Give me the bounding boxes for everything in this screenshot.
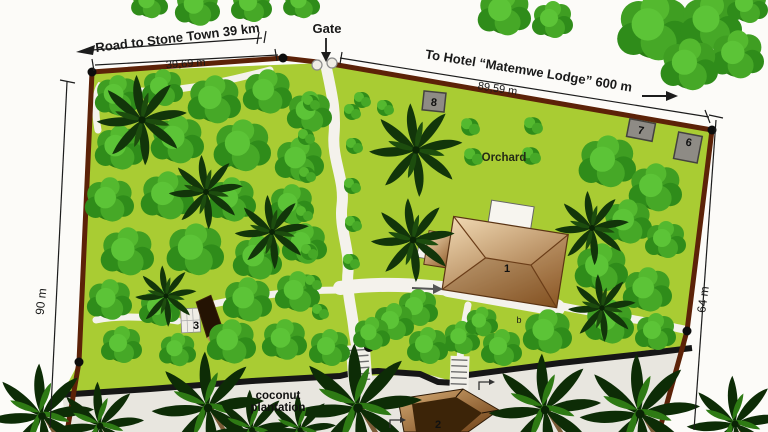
house-1-label: 1 — [504, 263, 510, 275]
coconut-label-line2: plantation — [251, 402, 306, 414]
building-3-label: 3 — [193, 320, 199, 332]
marker-8-label: 8 — [430, 97, 437, 110]
gate-post-icon — [312, 60, 322, 70]
dim-west-boundary: 90 m — [33, 288, 50, 316]
building-2-label: 2 — [435, 419, 441, 431]
entrance-arrow-icon — [412, 288, 434, 289]
orchard-label: Orchard — [482, 152, 527, 164]
site-plan-canvas: 8 7 6 1 2 3 b Road to Stone Town 39 km 3… — [0, 0, 768, 432]
marker-8: 8 — [422, 91, 446, 112]
site-plan: 8 7 6 1 2 3 b Road to Stone Town 39 km 3… — [0, 0, 768, 432]
marker-6: 6 — [674, 132, 703, 163]
steps-house-path — [449, 356, 469, 393]
gate-label: Gate — [313, 21, 342, 36]
coconut-label-line1: coconut — [256, 390, 301, 402]
marker-7: 7 — [627, 119, 656, 142]
point-b-label: b — [516, 315, 521, 325]
gate-post-icon — [327, 58, 337, 68]
